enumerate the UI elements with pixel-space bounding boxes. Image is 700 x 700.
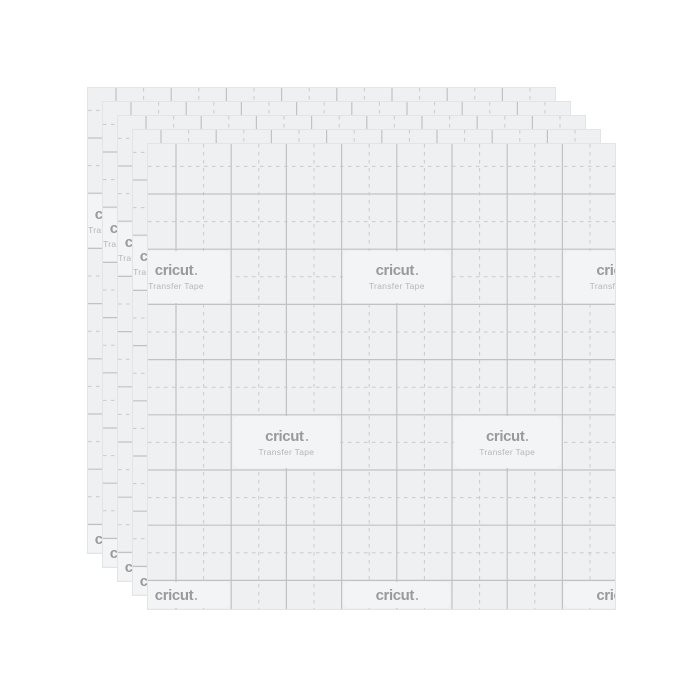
- cricut-logo: cricut: [376, 588, 418, 603]
- bottom-margin-logo: cricut: [343, 582, 450, 608]
- cricut-logo: cricut: [376, 263, 418, 278]
- cricut-logo: cricut: [155, 588, 197, 603]
- transfer-tape-label: cricut Transfer Tape: [454, 416, 561, 468]
- cricut-logo: cricut: [596, 588, 615, 603]
- product-name-label: Transfer Tape: [479, 448, 535, 457]
- product-name-label: Transfer Tape: [148, 282, 204, 291]
- bottom-margin-logo: cricut: [564, 582, 615, 608]
- product-name-label: Transfer Tape: [258, 448, 314, 457]
- product-name-label: Transfer Tape: [590, 282, 615, 291]
- cricut-logo: cricut: [486, 429, 528, 444]
- cricut-logo: cricut: [155, 263, 197, 278]
- cricut-transfer-tape-stack: cricut Transfer Tape cricut Transfer Tap…: [0, 0, 700, 700]
- transfer-tape-label: cricut Transfer Tape: [564, 251, 615, 303]
- product-name-label: Transfer Tape: [369, 282, 425, 291]
- bottom-margin-logo: cricut: [148, 582, 230, 608]
- cricut-logo: cricut: [596, 263, 615, 278]
- transfer-tape-label: cricut Transfer Tape: [148, 251, 230, 303]
- grid-pattern: [148, 144, 615, 609]
- transfer-tape-label: cricut Transfer Tape: [343, 251, 450, 303]
- transfer-tape-label: cricut Transfer Tape: [233, 416, 340, 468]
- cricut-logo: cricut: [265, 429, 307, 444]
- transfer-tape-sheet: cricut Transfer Tape cricut Transfer Tap…: [148, 144, 615, 609]
